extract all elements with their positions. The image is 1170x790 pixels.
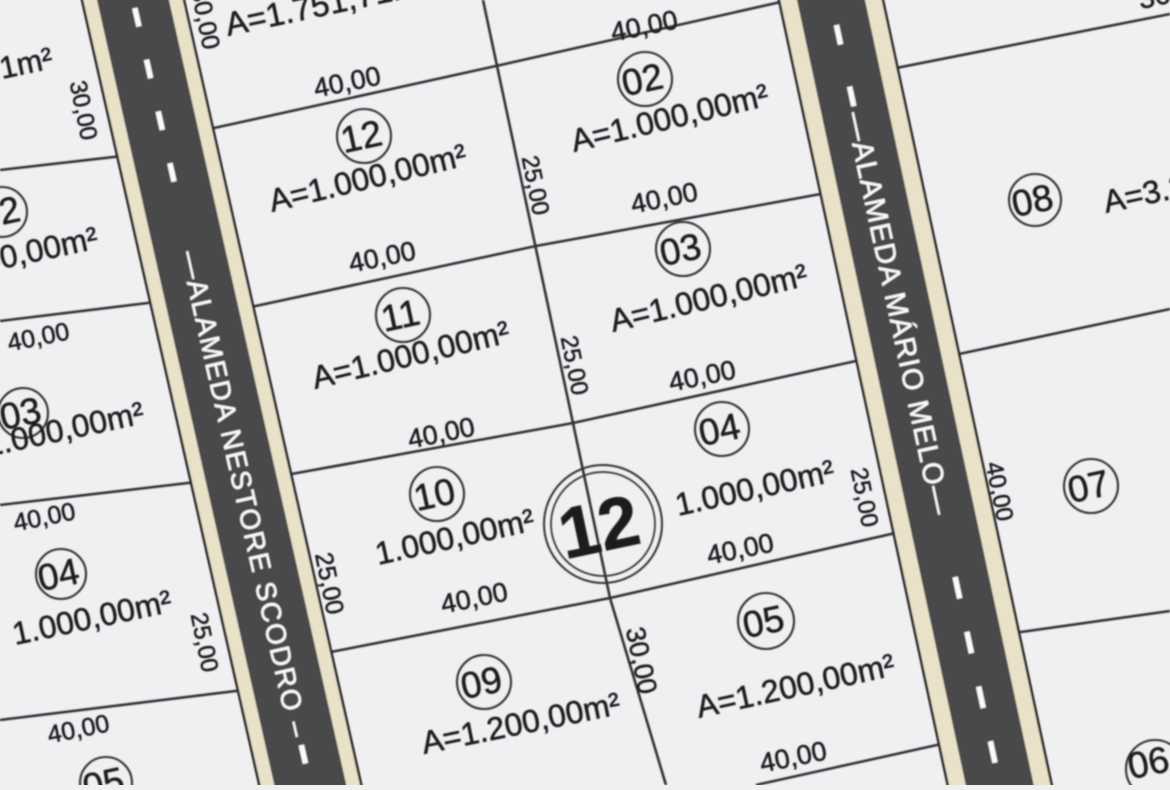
svg-text:12: 12: [552, 480, 647, 575]
svg-text:09: 09: [457, 658, 506, 707]
svg-text:02: 02: [618, 55, 667, 104]
svg-text:07: 07: [1064, 462, 1113, 511]
svg-text:03: 03: [656, 225, 705, 274]
svg-text:06: 06: [1124, 738, 1170, 785]
svg-text:12: 12: [337, 112, 386, 161]
svg-text:10: 10: [410, 470, 459, 519]
svg-text:05: 05: [739, 597, 788, 646]
svg-text:04: 04: [695, 405, 744, 454]
svg-text:08: 08: [1008, 176, 1057, 225]
svg-text:04: 04: [34, 550, 83, 599]
